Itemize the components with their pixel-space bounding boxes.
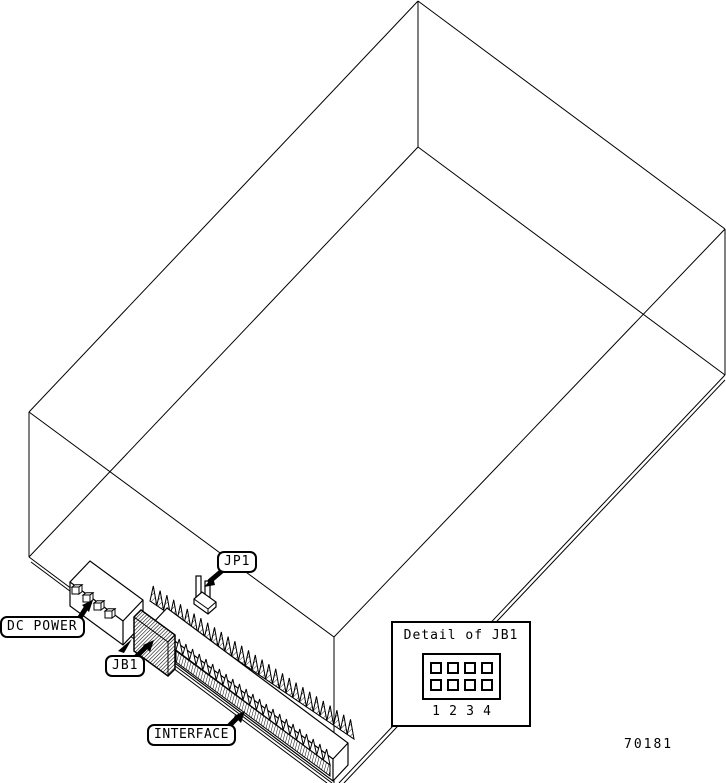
power-pin	[105, 609, 115, 618]
chassis-bottom-edges	[29, 147, 725, 783]
drive-connector-diagram: JP1 DC POWER JB1 INTERFACE Detail of JB1…	[0, 0, 726, 783]
pin-number-label: 4	[481, 704, 493, 719]
power-pin	[83, 593, 93, 602]
power-pin	[72, 585, 82, 594]
jumper-pin-cell	[447, 679, 459, 691]
jumper-pin-cell	[481, 679, 493, 691]
pin-number-label: 1	[430, 704, 442, 719]
chassis-base-thickness-lines	[31, 380, 725, 783]
jumper-pin-cell	[481, 662, 493, 674]
jb1-pin-grid	[422, 653, 501, 700]
detail-box-title: Detail of JB1	[393, 628, 529, 643]
callout-jp1: JP1	[217, 551, 257, 573]
jumper-pin-cell	[464, 679, 476, 691]
power-pin	[94, 601, 104, 610]
jumper-pin-cell	[430, 662, 442, 674]
chassis-top-edges	[29, 1, 725, 637]
jumper-pin-cell	[430, 679, 442, 691]
jb1-pin-numbers: 1 2 3 4	[422, 704, 501, 719]
pin-number-label: 3	[464, 704, 476, 719]
callout-jb1: JB1	[105, 655, 145, 677]
part-number: 70181	[624, 737, 673, 752]
pin-number-label: 2	[447, 704, 459, 719]
callout-interface: INTERFACE	[147, 724, 236, 746]
callout-dc-power: DC POWER	[0, 616, 85, 638]
jumper-pin-cell	[464, 662, 476, 674]
jumper-pin-cell	[447, 662, 459, 674]
detail-of-jb1-box: Detail of JB1 1 2 3 4	[391, 621, 531, 727]
